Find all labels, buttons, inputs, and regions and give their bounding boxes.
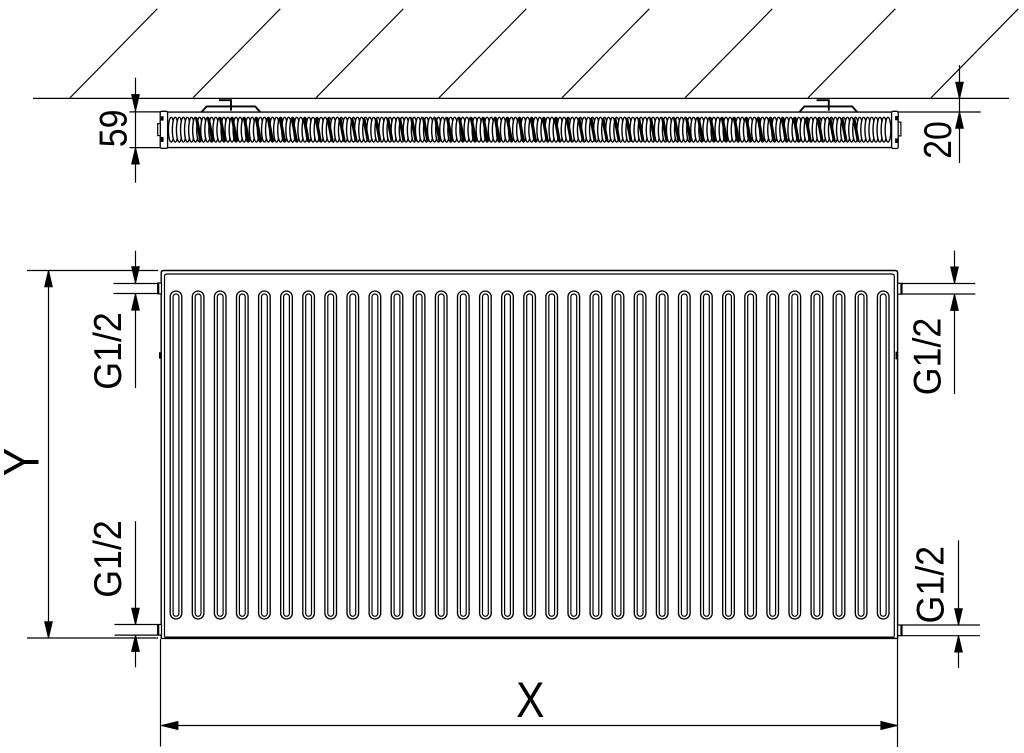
svg-text:G1/2: G1/2	[908, 546, 951, 624]
svg-text:Y: Y	[0, 448, 49, 476]
svg-text:59: 59	[91, 110, 135, 148]
svg-text:G1/2: G1/2	[905, 318, 948, 396]
svg-text:G1/2: G1/2	[86, 312, 129, 390]
svg-text:G1/2: G1/2	[86, 520, 129, 598]
svg-text:X: X	[516, 672, 544, 728]
svg-text:20: 20	[916, 121, 960, 159]
